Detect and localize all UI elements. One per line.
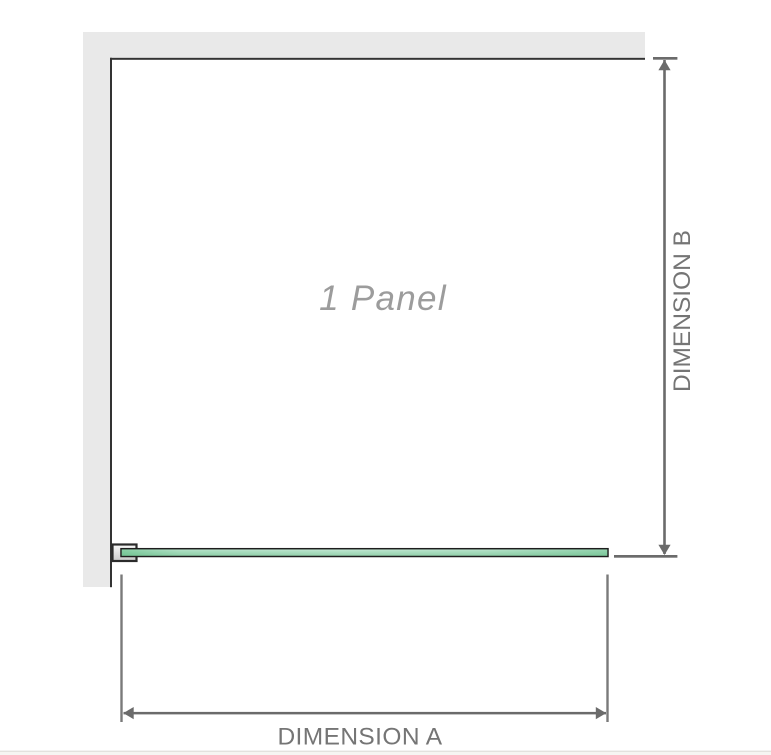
svg-text:DIMENSION A: DIMENSION A [277, 724, 442, 751]
svg-text:1 Panel: 1 Panel [319, 279, 447, 318]
svg-text:DIMENSION B: DIMENSION B [669, 230, 696, 392]
